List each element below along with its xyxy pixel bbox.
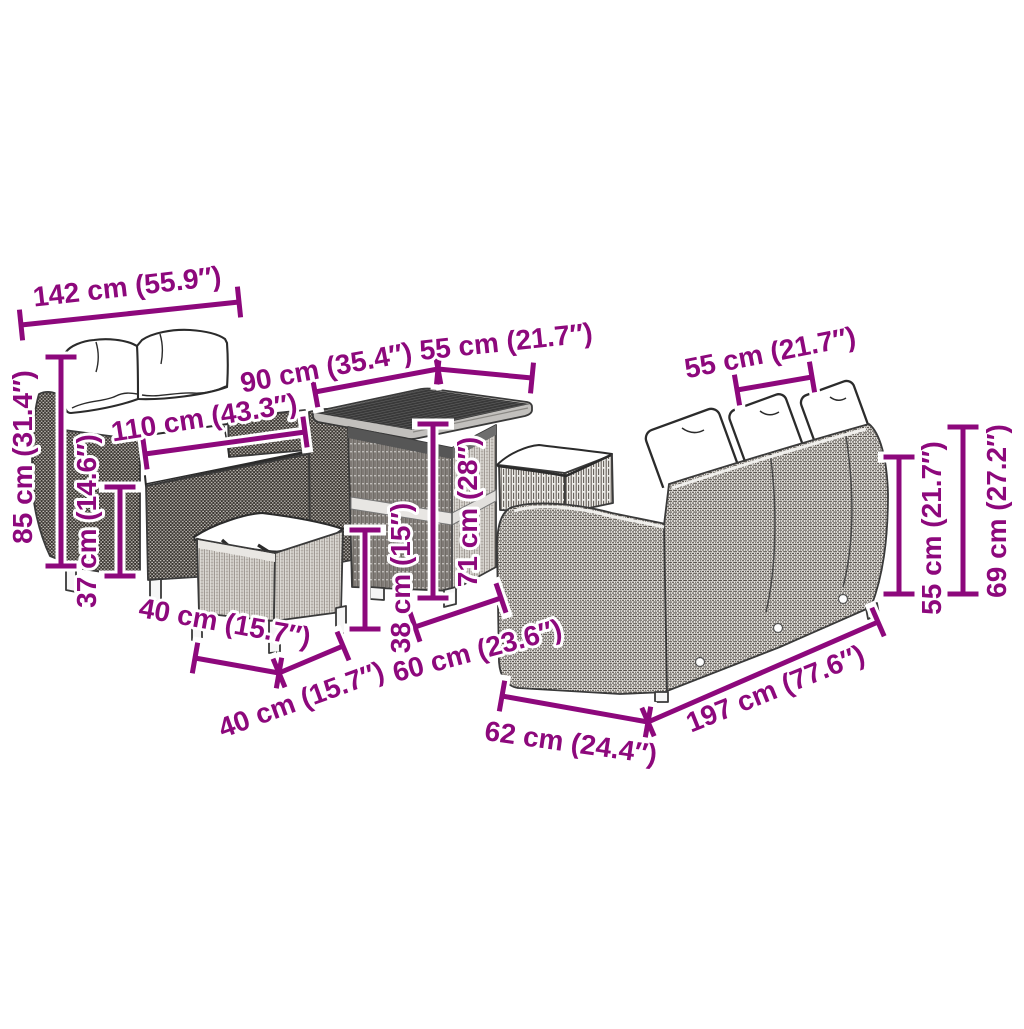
svg-text:38 cm (15″): 38 cm (15″) <box>385 503 416 653</box>
svg-text:71 cm (28″): 71 cm (28″) <box>452 437 483 587</box>
svg-text:55 cm (21.7″): 55 cm (21.7″) <box>916 441 947 615</box>
svg-text:69 cm (27.2″): 69 cm (27.2″) <box>981 424 1012 598</box>
svg-text:37 cm (14.6″): 37 cm (14.6″) <box>71 434 102 608</box>
svg-text:85 cm (31.4″): 85 cm (31.4″) <box>7 370 38 544</box>
